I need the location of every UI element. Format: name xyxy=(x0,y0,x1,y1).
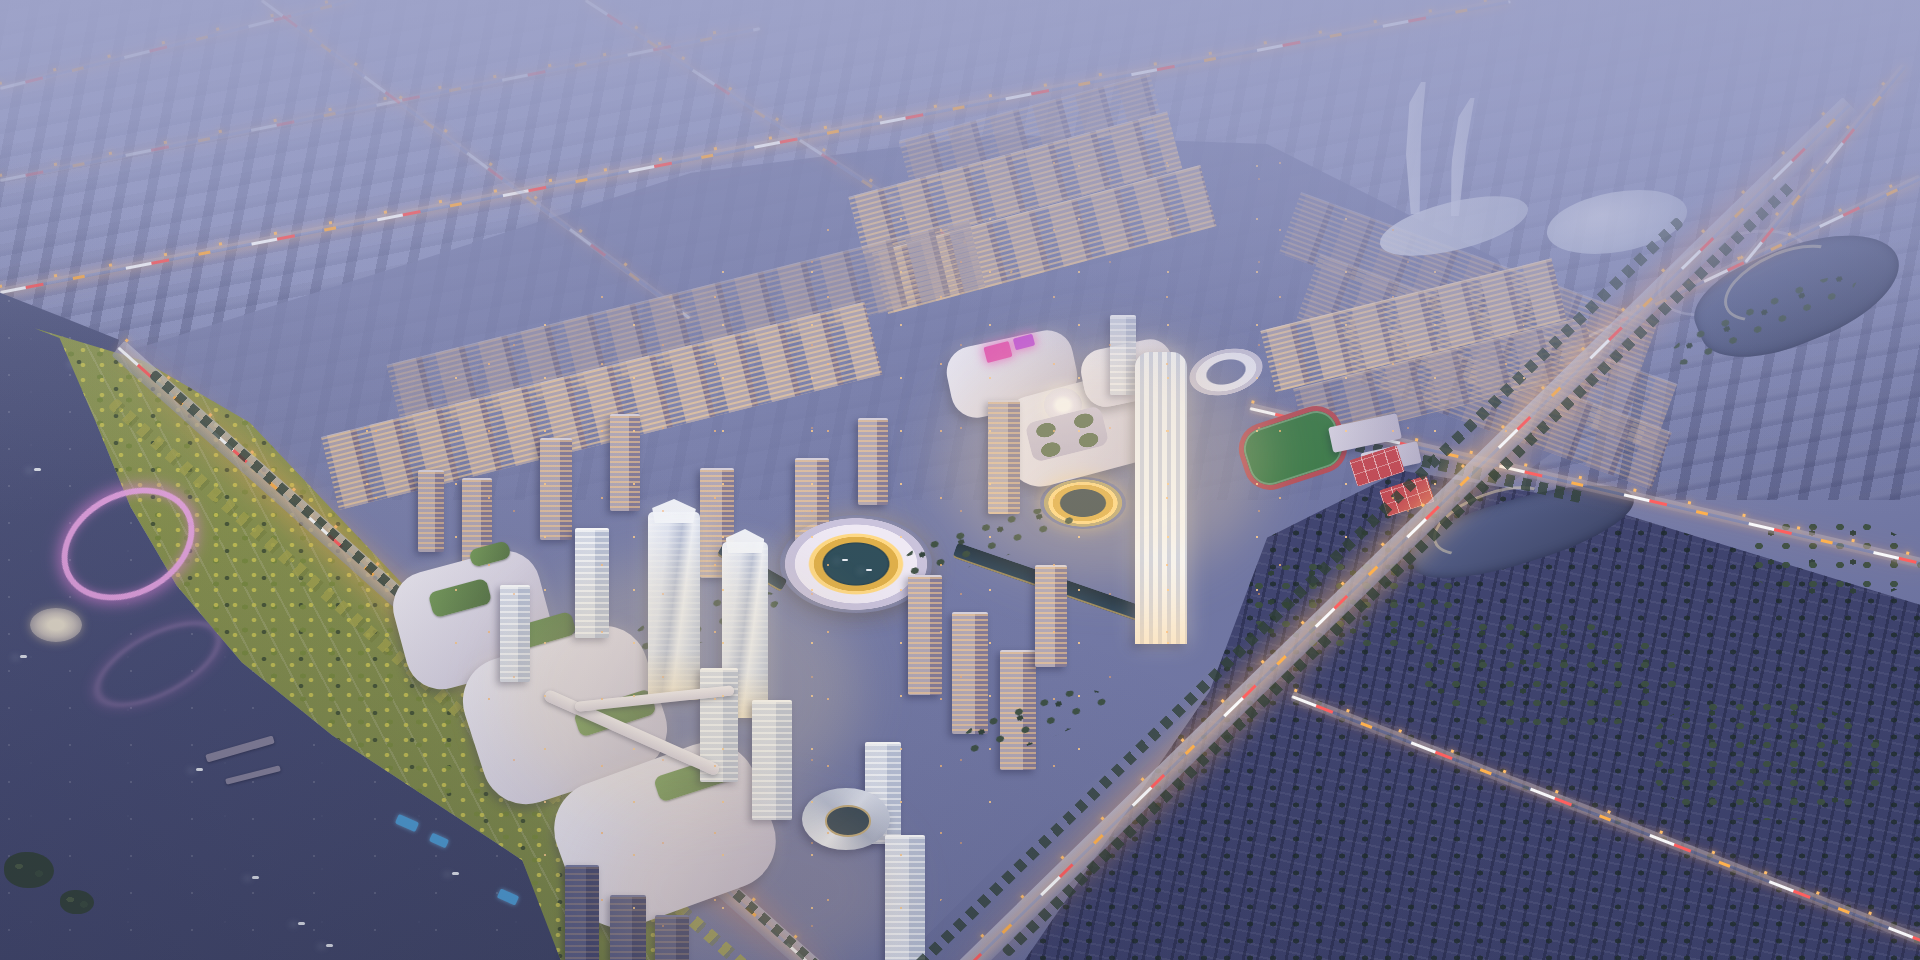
landmark-tower-east xyxy=(1135,352,1187,644)
boat xyxy=(196,768,203,771)
dark-tower xyxy=(610,895,646,960)
oval-event-ring xyxy=(1181,339,1270,405)
twin-sail-tower-1 xyxy=(1406,82,1440,214)
aerial-city-rendering xyxy=(0,0,1920,960)
stadium-boat xyxy=(842,559,848,561)
boat xyxy=(34,468,41,471)
boat xyxy=(452,872,459,875)
lake-island xyxy=(60,890,94,914)
lake-island xyxy=(4,852,54,888)
dark-tower xyxy=(565,865,599,960)
office-tower xyxy=(988,400,1020,514)
crater-hall xyxy=(802,788,890,850)
residential-tower xyxy=(1035,565,1067,667)
residential-tower xyxy=(908,575,942,695)
residential-tower xyxy=(952,612,988,734)
residential-tower xyxy=(858,418,888,505)
glass-box-tower xyxy=(885,835,925,960)
stadium-boat xyxy=(866,569,872,571)
boat xyxy=(20,655,27,658)
park-plaza xyxy=(30,608,82,642)
twin-tower-west-1 xyxy=(648,512,700,700)
highway-northeast xyxy=(1742,63,1908,264)
residential-tower xyxy=(418,470,444,552)
residential-tower xyxy=(540,438,572,540)
glass-box-tower xyxy=(752,700,792,820)
office-tower xyxy=(575,528,609,638)
residential-tower xyxy=(610,414,640,511)
boat xyxy=(326,944,333,947)
dark-tower xyxy=(655,915,689,960)
far-road xyxy=(0,0,353,91)
office-tower xyxy=(500,585,530,682)
boat xyxy=(252,876,259,879)
silver-tower xyxy=(1110,315,1136,395)
boat xyxy=(298,922,305,925)
